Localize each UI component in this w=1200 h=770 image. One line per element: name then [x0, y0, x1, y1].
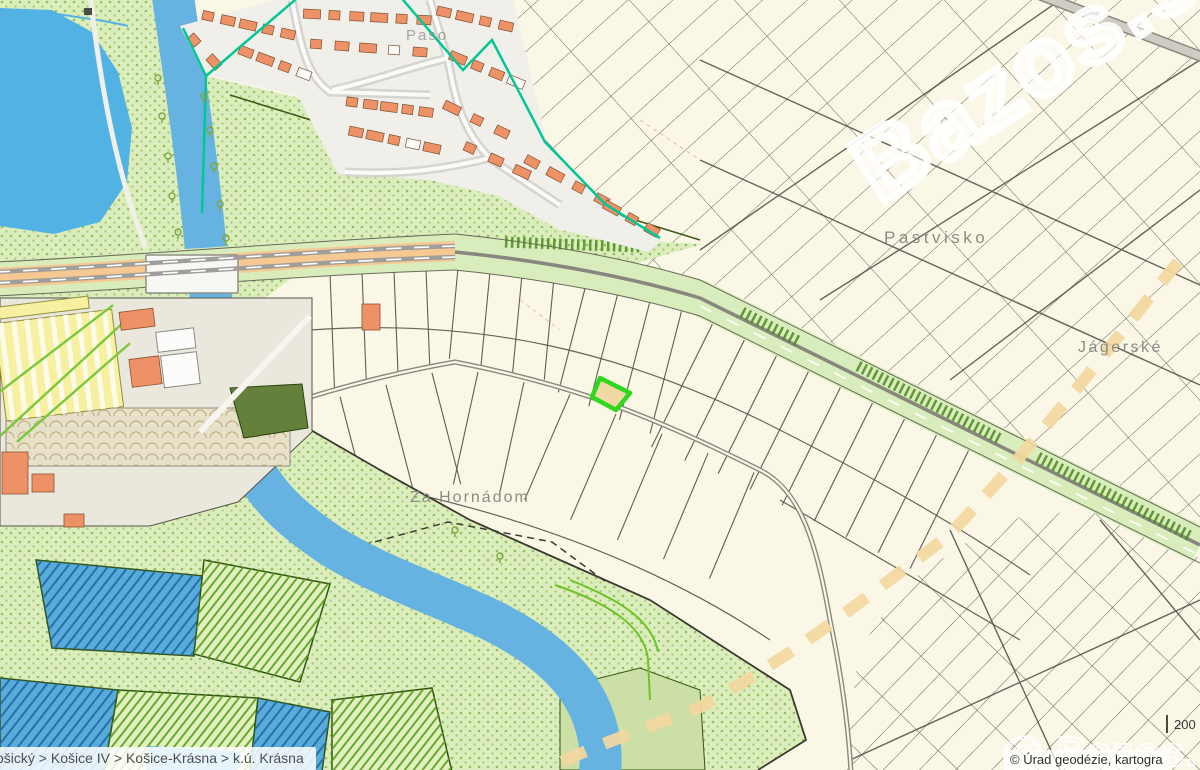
place-label-2: Za Hornádom [410, 489, 530, 506]
place-label-0: Pastvisko [884, 228, 988, 247]
map-viewport[interactable]: Bazos.sk PastviskoJágerskéZa HornádomPas… [0, 0, 1200, 770]
place-label-1: Jágerské [1078, 339, 1163, 356]
place-label-3: Paso [406, 27, 448, 44]
shed [84, 8, 92, 15]
breadcrumb[interactable]: ošický > Košice IV > Košice-Krásna > k.ú… [0, 747, 316, 770]
cadastral-map-canvas[interactable]: Bazos.sk PastviskoJágerskéZa HornádomPas… [0, 0, 1200, 770]
attribution: © Úrad geodézie, kartogra [1004, 750, 1169, 770]
